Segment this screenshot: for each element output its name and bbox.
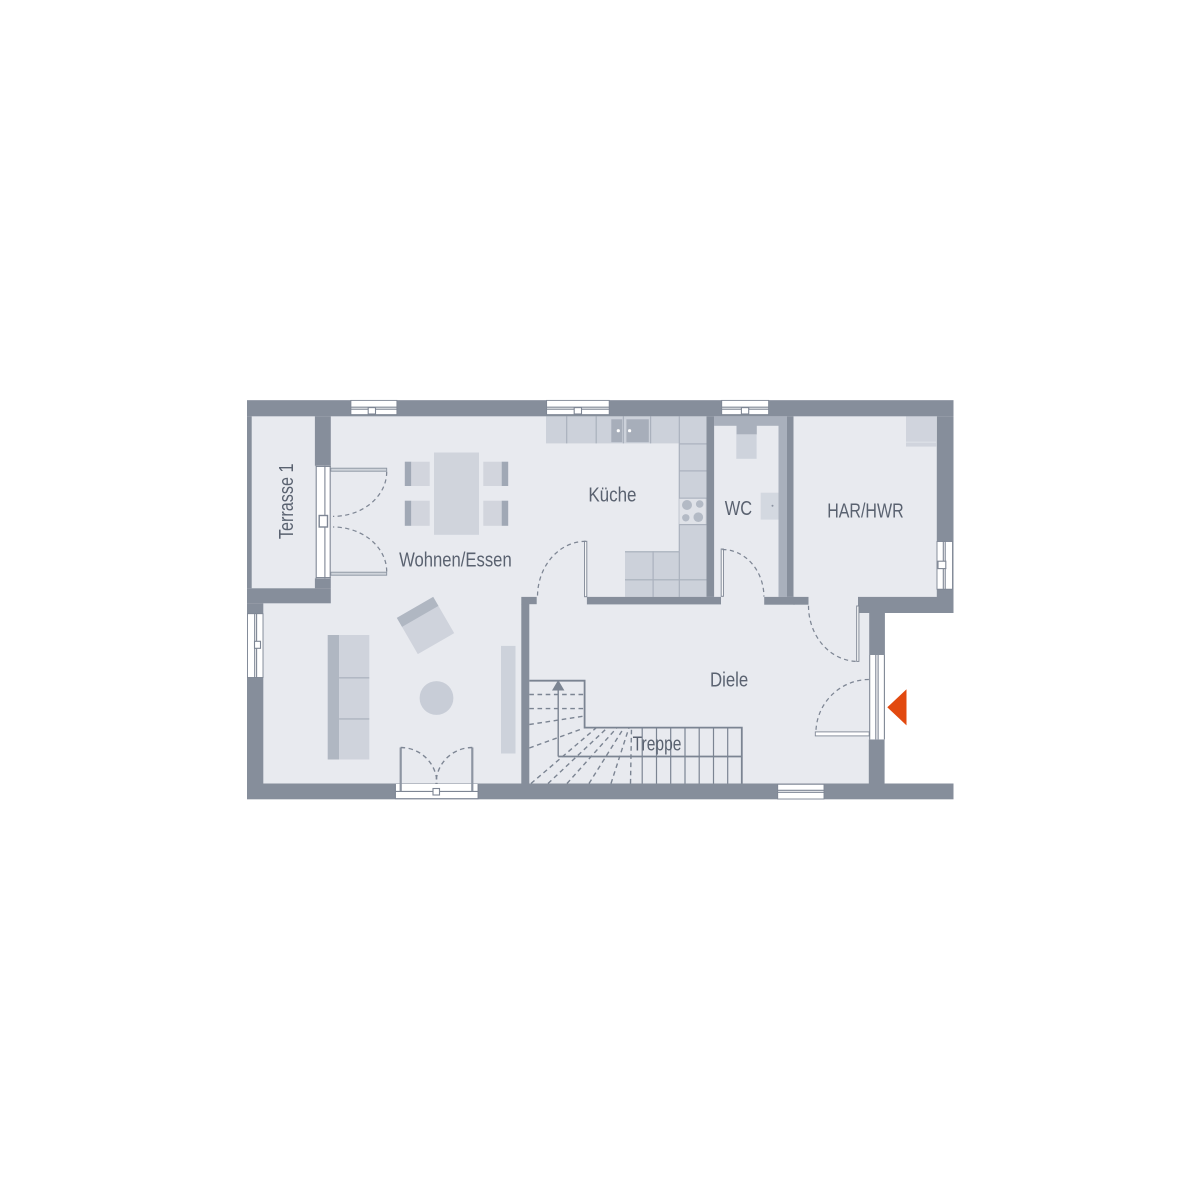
svg-text:Wohnen/Essen: Wohnen/Essen xyxy=(399,548,512,571)
svg-text:Diele: Diele xyxy=(710,668,748,691)
svg-text:Terrasse 1: Terrasse 1 xyxy=(275,464,297,540)
svg-text:WC: WC xyxy=(725,496,752,519)
svg-text:HAR/HWR: HAR/HWR xyxy=(827,500,903,522)
svg-text:Treppe: Treppe xyxy=(633,733,682,755)
svg-text:Küche: Küche xyxy=(588,483,636,506)
